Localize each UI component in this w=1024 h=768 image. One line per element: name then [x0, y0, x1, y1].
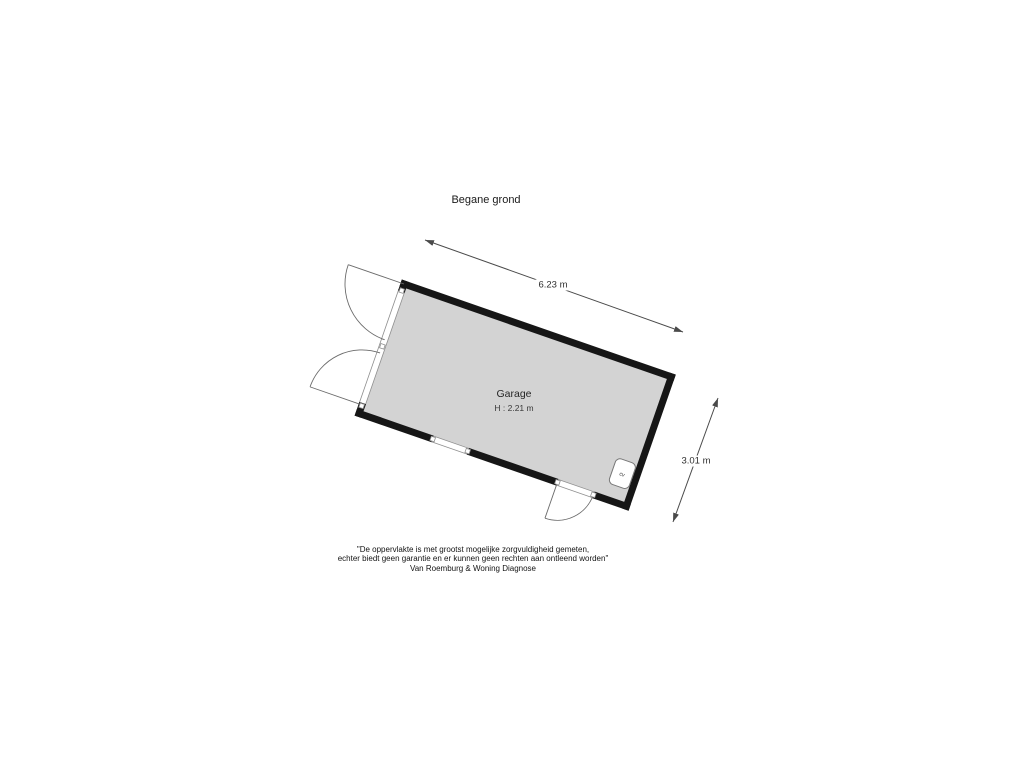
dimension-width-label: 6.23 m — [535, 280, 570, 291]
room-height-label: H : 2.21 m — [494, 403, 533, 413]
jamb-marker — [359, 403, 365, 409]
garage-unit: cv — [291, 261, 676, 543]
disclaimer-line-2: echter biedt geen garantie en er kunnen … — [338, 554, 609, 563]
disclaimer-line-1: "De oppervlakte is met grootst mogelijke… — [338, 545, 609, 554]
jamb-marker — [430, 436, 436, 442]
jamb-marker — [555, 480, 561, 486]
dimension-depth-label: 3.01 m — [678, 456, 713, 467]
room-name-label: Garage — [496, 388, 531, 400]
jamb-marker — [380, 344, 386, 350]
floorplan-page: cv Begane grond 6.23 m 3.01 m Garage H :… — [0, 0, 1024, 768]
floorplan-canvas: cv — [0, 0, 1024, 768]
jamb-marker — [591, 492, 597, 498]
footer-disclaimer: "De oppervlakte is met grootst mogelijke… — [338, 545, 609, 573]
jamb-marker — [465, 448, 471, 454]
page-title: Begane grond — [451, 194, 520, 206]
company-name: Van Roemburg & Woning Diagnose — [338, 564, 609, 573]
jamb-marker — [399, 288, 405, 294]
